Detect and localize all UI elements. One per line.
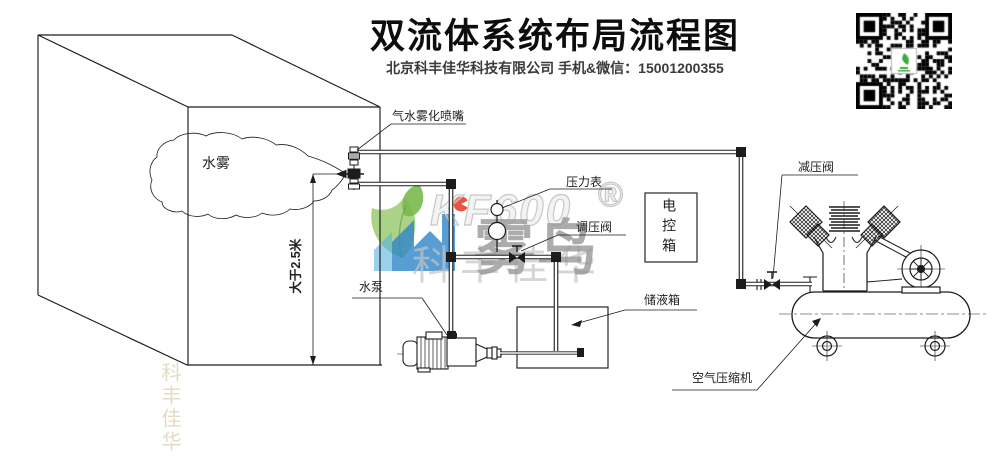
mist-cloud bbox=[150, 133, 346, 219]
pipes bbox=[355, 152, 812, 353]
storage-tank-arrow bbox=[571, 320, 582, 327]
compressor-arrow bbox=[812, 318, 821, 327]
compressor-cooler bbox=[829, 207, 860, 231]
compressor-motor bbox=[897, 245, 945, 293]
room-box bbox=[38, 35, 382, 365]
reducing-valve-figure bbox=[764, 272, 780, 290]
regulating-valve-figure bbox=[509, 246, 525, 263]
control-box-outline bbox=[645, 193, 697, 262]
bypass-pipe bbox=[451, 257, 556, 351]
nozzle-figure bbox=[337, 147, 364, 190]
storage-tank-outline bbox=[517, 307, 608, 368]
compressor-wheel-right bbox=[920, 331, 950, 361]
air-compressor-figure bbox=[757, 201, 987, 361]
air-pipe bbox=[355, 152, 812, 284]
height-dimension bbox=[310, 174, 343, 365]
water-discharge-pipe bbox=[355, 184, 451, 338]
compressor-cylinder-left bbox=[790, 206, 832, 248]
diagram-linework bbox=[0, 0, 992, 460]
compressor-wheel-left bbox=[812, 331, 842, 361]
pipe-joints bbox=[446, 147, 746, 357]
diagram-page: KF600 ® 科丰佳华 雾鸟 科丰佳华 bbox=[0, 0, 992, 460]
spray-direction-arrow bbox=[337, 171, 346, 178]
wechat-qr-code bbox=[856, 13, 952, 109]
